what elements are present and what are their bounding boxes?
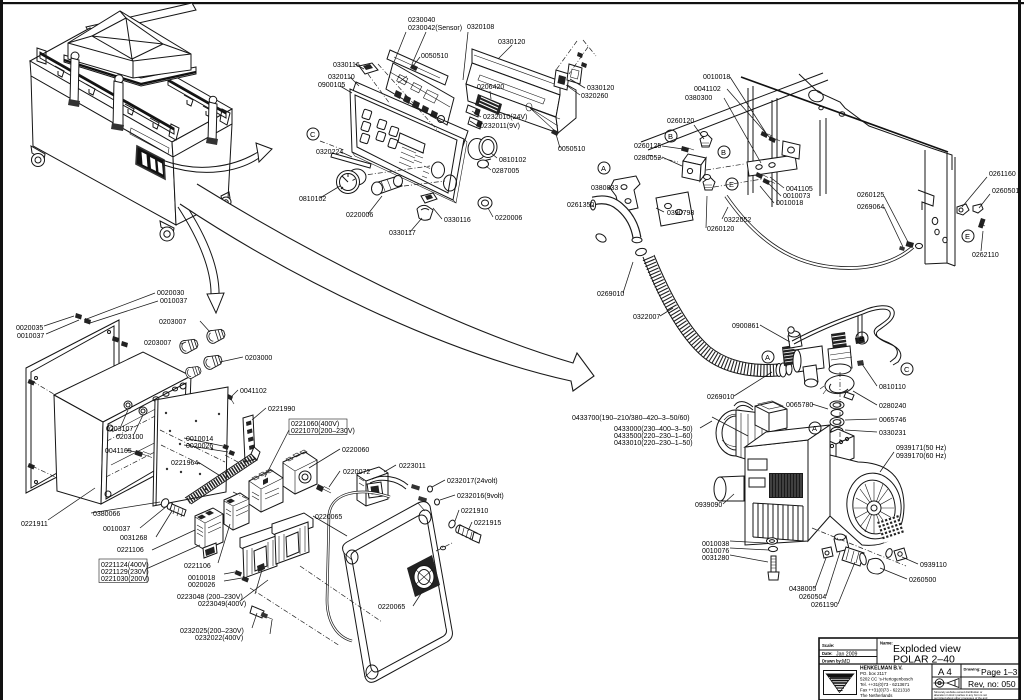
svg-text:0220006: 0220006 [346, 212, 373, 219]
svg-text:0221106: 0221106 [184, 563, 211, 570]
svg-text:0260125: 0260125 [857, 192, 884, 199]
svg-text:0330117: 0330117 [389, 230, 416, 237]
svg-text:0322007: 0322007 [633, 314, 660, 321]
svg-text:0261350: 0261350 [567, 202, 594, 209]
svg-text:0221060(400V): 0221060(400V) [291, 421, 339, 428]
svg-text:0939171(50 Hz): 0939171(50 Hz) [896, 445, 946, 452]
svg-text:0230042(Sensor): 0230042(Sensor) [408, 25, 462, 32]
svg-text:0269010: 0269010 [597, 291, 624, 298]
svg-text:0260501: 0260501 [992, 188, 1019, 195]
svg-text:0010037: 0010037 [17, 333, 44, 340]
svg-text:0010037: 0010037 [103, 526, 130, 533]
svg-text:POLAR 2–40: POLAR 2–40 [893, 654, 955, 666]
svg-text:A: A [601, 164, 606, 173]
svg-text:0330231: 0330231 [879, 430, 906, 437]
svg-text:0203007: 0203007 [144, 340, 171, 347]
svg-text:0322052: 0322052 [724, 217, 751, 224]
svg-text:0221030(200V): 0221030(200V) [101, 576, 149, 583]
svg-text:0433010(220–230–1–50): 0433010(220–230–1–50) [614, 440, 693, 447]
svg-text:0330116: 0330116 [444, 217, 471, 224]
svg-text:E: E [729, 180, 734, 189]
svg-text:0220065: 0220065 [378, 604, 405, 611]
svg-text:0939090: 0939090 [695, 502, 722, 509]
svg-text:0269010: 0269010 [707, 394, 734, 401]
svg-text:0203007: 0203007 [159, 319, 186, 326]
svg-text:0261160: 0261160 [989, 171, 1016, 178]
svg-text:0221070(200–230V): 0221070(200–230V) [291, 428, 355, 435]
svg-text:0260500: 0260500 [909, 577, 936, 584]
svg-text:Page 1–3: Page 1–3 [981, 667, 1018, 677]
svg-text:0050510: 0050510 [558, 146, 585, 153]
svg-text:PO. box 2117: PO. box 2117 [860, 671, 887, 676]
svg-text:0020030: 0020030 [157, 290, 184, 297]
svg-text:0041105: 0041105 [105, 448, 132, 455]
svg-text:0380066: 0380066 [93, 511, 120, 518]
svg-text:B: B [859, 334, 864, 343]
svg-text:B: B [721, 148, 726, 157]
svg-text:0320108: 0320108 [467, 24, 494, 31]
svg-text:0438005: 0438005 [789, 586, 816, 593]
svg-text:Jan 2009: Jan 2009 [836, 652, 857, 658]
svg-text:0260120: 0260120 [707, 226, 734, 233]
svg-text:Scale:: Scale: [822, 643, 834, 648]
svg-text:0810102: 0810102 [299, 196, 326, 203]
svg-text:0221124(400V): 0221124(400V) [101, 562, 149, 569]
svg-text:0020035: 0020035 [16, 325, 43, 332]
svg-text:0433500(220–230–1–60): 0433500(220–230–1–60) [614, 433, 693, 440]
svg-text:0010038: 0010038 [702, 541, 729, 548]
svg-text:0280240: 0280240 [879, 403, 906, 410]
svg-text:0031280: 0031280 [702, 555, 729, 562]
svg-text:0280052: 0280052 [634, 155, 661, 162]
svg-text:0232011(9V): 0232011(9V) [480, 123, 520, 130]
svg-text:Rev, no: 050: Rev, no: 050 [968, 679, 1016, 689]
svg-text:C: C [904, 365, 910, 374]
svg-text:0262110: 0262110 [972, 252, 999, 259]
svg-text:0203100: 0203100 [116, 434, 143, 441]
svg-text:E: E [965, 232, 970, 241]
svg-text:0221964: 0221964 [171, 460, 198, 467]
svg-text:0041102: 0041102 [694, 86, 721, 93]
svg-text:Date:: Date: [822, 651, 832, 656]
svg-text:0220072: 0220072 [343, 469, 370, 476]
svg-text:0939170(60 Hz): 0939170(60 Hz) [896, 453, 946, 460]
svg-text:0433700(190–210/380–420–3–50/6: 0433700(190–210/380–420–3–50/60) [572, 415, 690, 422]
svg-text:0260125: 0260125 [634, 143, 661, 150]
svg-text:0260504: 0260504 [799, 594, 826, 601]
svg-text:0380833: 0380833 [591, 185, 618, 192]
svg-text:0065780: 0065780 [786, 402, 813, 409]
svg-text:0220065: 0220065 [315, 514, 342, 521]
svg-text:Tel. ++31(0)73 - 6213671: Tel. ++31(0)73 - 6213671 [860, 682, 910, 687]
svg-text:0380300: 0380300 [685, 95, 712, 102]
svg-text:0230040: 0230040 [408, 17, 435, 24]
svg-text:The Netherlands: The Netherlands [860, 693, 893, 698]
svg-text:0221990: 0221990 [268, 406, 295, 413]
svg-text:0010018: 0010018 [188, 575, 215, 582]
svg-text:0320224: 0320224 [316, 149, 343, 156]
svg-text:0221106: 0221106 [117, 547, 144, 554]
svg-text:0269064: 0269064 [857, 204, 884, 211]
svg-text:0330120: 0330120 [498, 39, 525, 46]
svg-text:0810110: 0810110 [879, 384, 906, 391]
svg-text:0232022(400V): 0232022(400V) [195, 635, 243, 642]
svg-text:0330120: 0330120 [587, 85, 614, 92]
svg-text:0010076: 0010076 [702, 548, 729, 555]
svg-text:permitted about other processe: permitted about other processes of the a… [934, 696, 988, 700]
svg-text:Fax ++31(0)73 - 6221318: Fax ++31(0)73 - 6221318 [860, 688, 910, 693]
svg-text:0260120: 0260120 [667, 118, 694, 125]
svg-text:5202 CC ’s-Hertogenbosch: 5202 CC ’s-Hertogenbosch [860, 677, 913, 682]
svg-text:Name:: Name: [880, 641, 893, 646]
svg-text:0010018: 0010018 [776, 200, 803, 207]
svg-text:0065746: 0065746 [879, 417, 906, 424]
svg-text:0220060: 0220060 [342, 447, 369, 454]
svg-text:0900105: 0900105 [318, 82, 345, 89]
svg-text:0221911: 0221911 [21, 521, 48, 528]
svg-text:0232016(9volt): 0232016(9volt) [457, 493, 504, 500]
svg-text:0050510: 0050510 [421, 53, 448, 60]
svg-text:B: B [668, 132, 673, 141]
svg-text:0900861: 0900861 [732, 323, 759, 330]
svg-text:0433000(230–400–3–50): 0433000(230–400–3–50) [614, 426, 693, 433]
svg-text:0232025(200–230V): 0232025(200–230V) [180, 628, 244, 635]
svg-text:MD: MD [842, 659, 850, 665]
svg-text:A: A [765, 353, 770, 362]
svg-text:0223049(400V): 0223049(400V) [198, 601, 246, 608]
svg-text:0010014: 0010014 [186, 436, 213, 443]
svg-text:0232010(24V): 0232010(24V) [483, 114, 527, 121]
svg-text:A 4: A 4 [938, 667, 952, 678]
svg-text:0203107: 0203107 [106, 426, 133, 433]
svg-text:0221915: 0221915 [474, 520, 501, 527]
svg-text:0220006: 0220006 [495, 215, 522, 222]
svg-text:0232017(24volt): 0232017(24volt) [447, 478, 498, 485]
svg-text:A: A [812, 424, 817, 433]
svg-text:0390798: 0390798 [667, 210, 694, 217]
svg-text:Drawing:: Drawing: [964, 667, 981, 672]
svg-text:0221129(230V): 0221129(230V) [101, 569, 149, 576]
svg-text:0287005: 0287005 [492, 168, 519, 175]
svg-text:0010018: 0010018 [703, 74, 730, 81]
svg-text:0206420: 0206420 [477, 84, 504, 91]
svg-text:0020026: 0020026 [186, 443, 213, 450]
svg-text:C: C [310, 130, 316, 139]
svg-text:0010073: 0010073 [783, 193, 810, 200]
svg-text:0320110: 0320110 [328, 74, 355, 81]
svg-text:0010037: 0010037 [160, 298, 187, 305]
svg-text:0031268: 0031268 [120, 535, 147, 542]
svg-text:0223011: 0223011 [399, 463, 426, 470]
svg-text:0223048 (200–230V): 0223048 (200–230V) [177, 594, 243, 601]
svg-text:0330116: 0330116 [333, 62, 360, 69]
svg-text:0041102: 0041102 [240, 388, 267, 395]
svg-text:Drawn by:: Drawn by: [822, 659, 842, 664]
svg-text:0221910: 0221910 [461, 508, 488, 515]
svg-text:0810102: 0810102 [499, 157, 526, 164]
svg-text:0041105: 0041105 [786, 186, 813, 193]
svg-text:0203000: 0203000 [245, 355, 272, 362]
svg-text:0261190: 0261190 [811, 602, 838, 609]
svg-text:0020026: 0020026 [188, 582, 215, 589]
svg-text:0939110: 0939110 [920, 562, 947, 569]
svg-text:0320260: 0320260 [581, 93, 608, 100]
